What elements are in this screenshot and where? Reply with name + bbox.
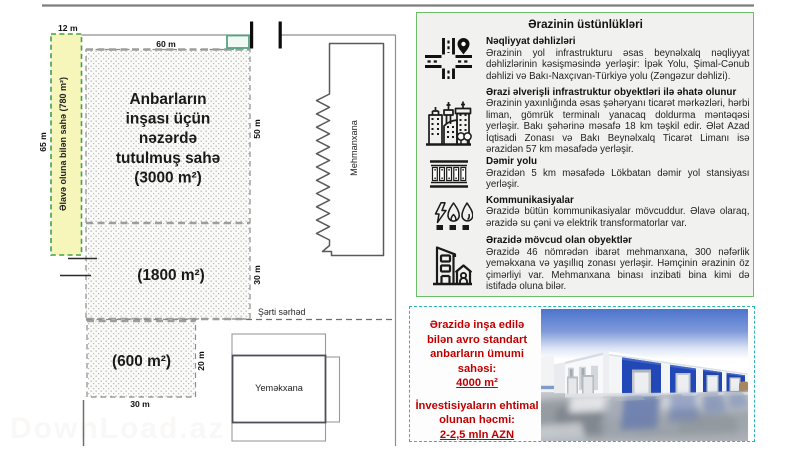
svg-text:Anbarların: Anbarların <box>130 91 207 108</box>
svg-text:30 m: 30 m <box>130 399 150 409</box>
svg-text:30 m: 30 m <box>252 265 262 285</box>
svg-text:Mehmanxana: Mehmanxana <box>349 119 359 176</box>
svg-text:Yeməkxana: Yeməkxana <box>255 383 304 393</box>
svg-text:(3000 m²): (3000 m²) <box>134 169 202 186</box>
svg-text:DownLoad.az: DownLoad.az <box>10 412 225 445</box>
svg-text:65 m: 65 m <box>38 132 48 152</box>
svg-text:inşası üçün: inşası üçün <box>126 111 211 128</box>
svg-text:(600 m²): (600 m²) <box>112 353 171 370</box>
svg-text:Əlavə oluna bilən sahə (780 m²: Əlavə oluna bilən sahə (780 m²) <box>58 77 68 211</box>
svg-text:nəzərdə: nəzərdə <box>139 130 198 147</box>
svg-text:Şərti sərhəd: Şərti sərhəd <box>258 307 306 317</box>
svg-text:(1800 m²): (1800 m²) <box>137 267 205 284</box>
svg-text:60 m: 60 m <box>156 39 176 49</box>
svg-text:20 m: 20 m <box>196 351 206 371</box>
svg-text:50 m: 50 m <box>252 119 262 139</box>
svg-text:12 m: 12 m <box>58 23 78 33</box>
svg-text:tutulmuş sahə: tutulmuş sahə <box>116 150 221 167</box>
